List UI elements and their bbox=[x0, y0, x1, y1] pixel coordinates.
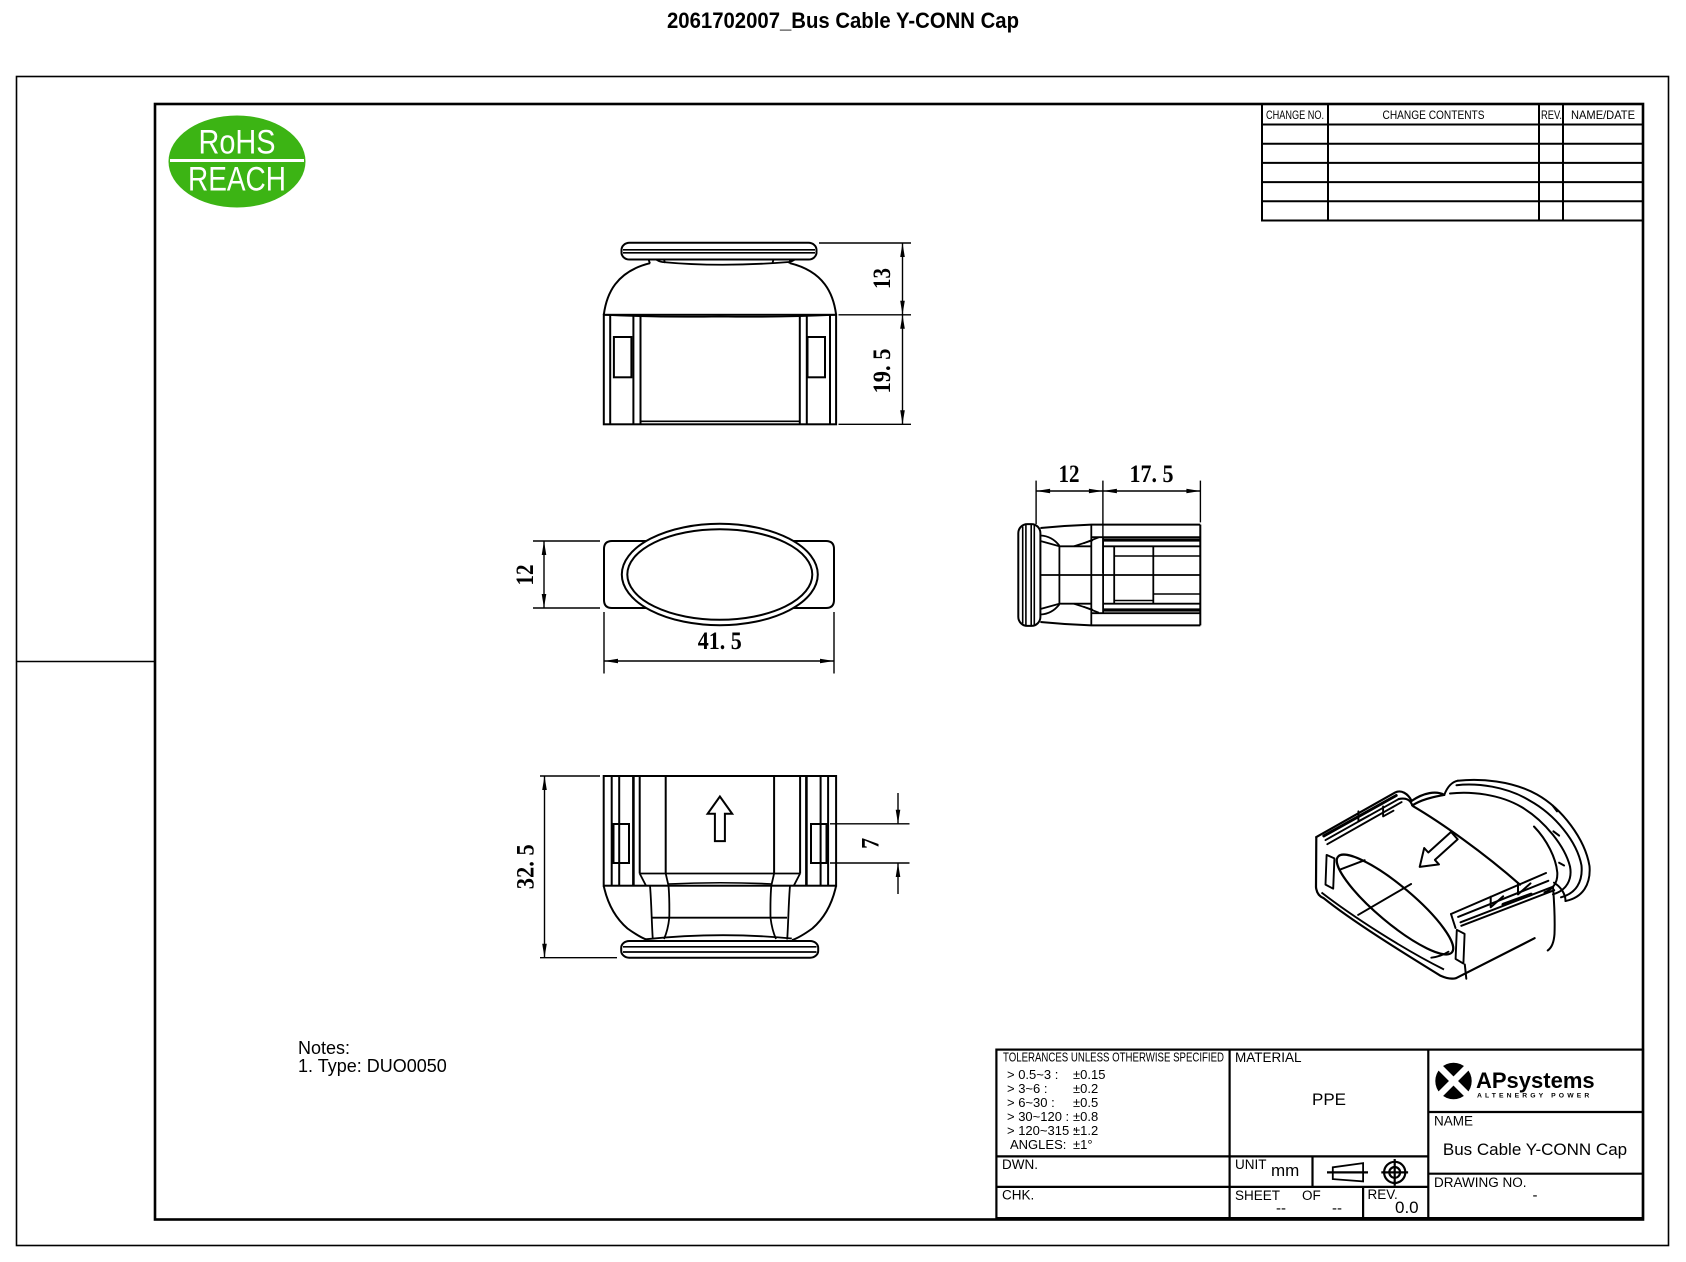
svg-text:OF: OF bbox=[1302, 1188, 1321, 1203]
svg-text:--: -- bbox=[1332, 1200, 1342, 1217]
svg-text:SHEET: SHEET bbox=[1235, 1188, 1280, 1203]
svg-text:7: 7 bbox=[858, 838, 885, 849]
svg-text:±0.2: ±0.2 bbox=[1073, 1081, 1098, 1096]
svg-text:> 0.5~3 :: > 0.5~3 : bbox=[1007, 1067, 1058, 1082]
svg-text:APsystems: APsystems bbox=[1476, 1068, 1595, 1093]
svg-text:REV.: REV. bbox=[1368, 1187, 1398, 1202]
svg-text:±1.2: ±1.2 bbox=[1073, 1123, 1098, 1138]
svg-text:DWN.: DWN. bbox=[1002, 1157, 1038, 1172]
svg-text:0.0: 0.0 bbox=[1395, 1198, 1419, 1217]
svg-text:mm: mm bbox=[1271, 1161, 1299, 1180]
svg-text:2061702007_Bus Cable Y-CONN Ca: 2061702007_Bus Cable Y-CONN Cap bbox=[667, 8, 1019, 33]
svg-text:PPE: PPE bbox=[1312, 1090, 1346, 1109]
svg-text:Notes:: Notes: bbox=[298, 1038, 350, 1058]
svg-text:19. 5: 19. 5 bbox=[869, 349, 896, 394]
svg-text:CHK.: CHK. bbox=[1002, 1188, 1034, 1203]
svg-text:±0.5: ±0.5 bbox=[1073, 1095, 1098, 1110]
svg-text:MATERIAL: MATERIAL bbox=[1235, 1050, 1302, 1065]
svg-text:17. 5: 17. 5 bbox=[1130, 461, 1174, 488]
svg-text:±0.15: ±0.15 bbox=[1073, 1067, 1105, 1082]
svg-text:--: -- bbox=[1276, 1200, 1286, 1217]
svg-text:Bus Cable Y-CONN Cap: Bus Cable Y-CONN Cap bbox=[1443, 1140, 1627, 1159]
svg-text:ALTENERGY POWER: ALTENERGY POWER bbox=[1477, 1093, 1592, 1100]
svg-text:> 3~6 :: > 3~6 : bbox=[1007, 1081, 1047, 1096]
svg-text:-: - bbox=[1533, 1187, 1538, 1204]
svg-text:ANGLES:: ANGLES: bbox=[1010, 1137, 1066, 1152]
svg-text:CHANGE CONTENTS: CHANGE CONTENTS bbox=[1383, 108, 1485, 122]
svg-text:1. Type: DUO0050: 1. Type: DUO0050 bbox=[298, 1056, 447, 1076]
svg-text:REACH: REACH bbox=[188, 161, 286, 199]
svg-text:41. 5: 41. 5 bbox=[698, 628, 742, 655]
svg-text:RoHS: RoHS bbox=[199, 124, 276, 162]
svg-text:DRAWING NO.: DRAWING NO. bbox=[1434, 1175, 1527, 1190]
svg-text:±0.8: ±0.8 bbox=[1073, 1109, 1098, 1124]
svg-text:> 30~120 :: > 30~120 : bbox=[1007, 1109, 1069, 1124]
svg-text:±1°: ±1° bbox=[1073, 1137, 1093, 1152]
svg-text:TOLERANCES UNLESS OTHERWISE SP: TOLERANCES UNLESS OTHERWISE SPECIFIED bbox=[1003, 1051, 1224, 1065]
svg-text:UNIT: UNIT bbox=[1235, 1157, 1267, 1172]
svg-text:NAME: NAME bbox=[1434, 1114, 1473, 1129]
svg-text:REV.: REV. bbox=[1541, 108, 1562, 122]
svg-text:32. 5: 32. 5 bbox=[513, 844, 540, 889]
svg-text:NAME/DATE: NAME/DATE bbox=[1571, 108, 1635, 122]
svg-text:CHANGE NO.: CHANGE NO. bbox=[1266, 108, 1324, 122]
svg-text:> 6~30 :: > 6~30 : bbox=[1007, 1095, 1055, 1110]
svg-text:> 120~315 :: > 120~315 : bbox=[1007, 1123, 1076, 1138]
svg-text:13: 13 bbox=[869, 268, 896, 289]
svg-text:12: 12 bbox=[512, 565, 539, 586]
svg-text:12: 12 bbox=[1059, 461, 1080, 488]
